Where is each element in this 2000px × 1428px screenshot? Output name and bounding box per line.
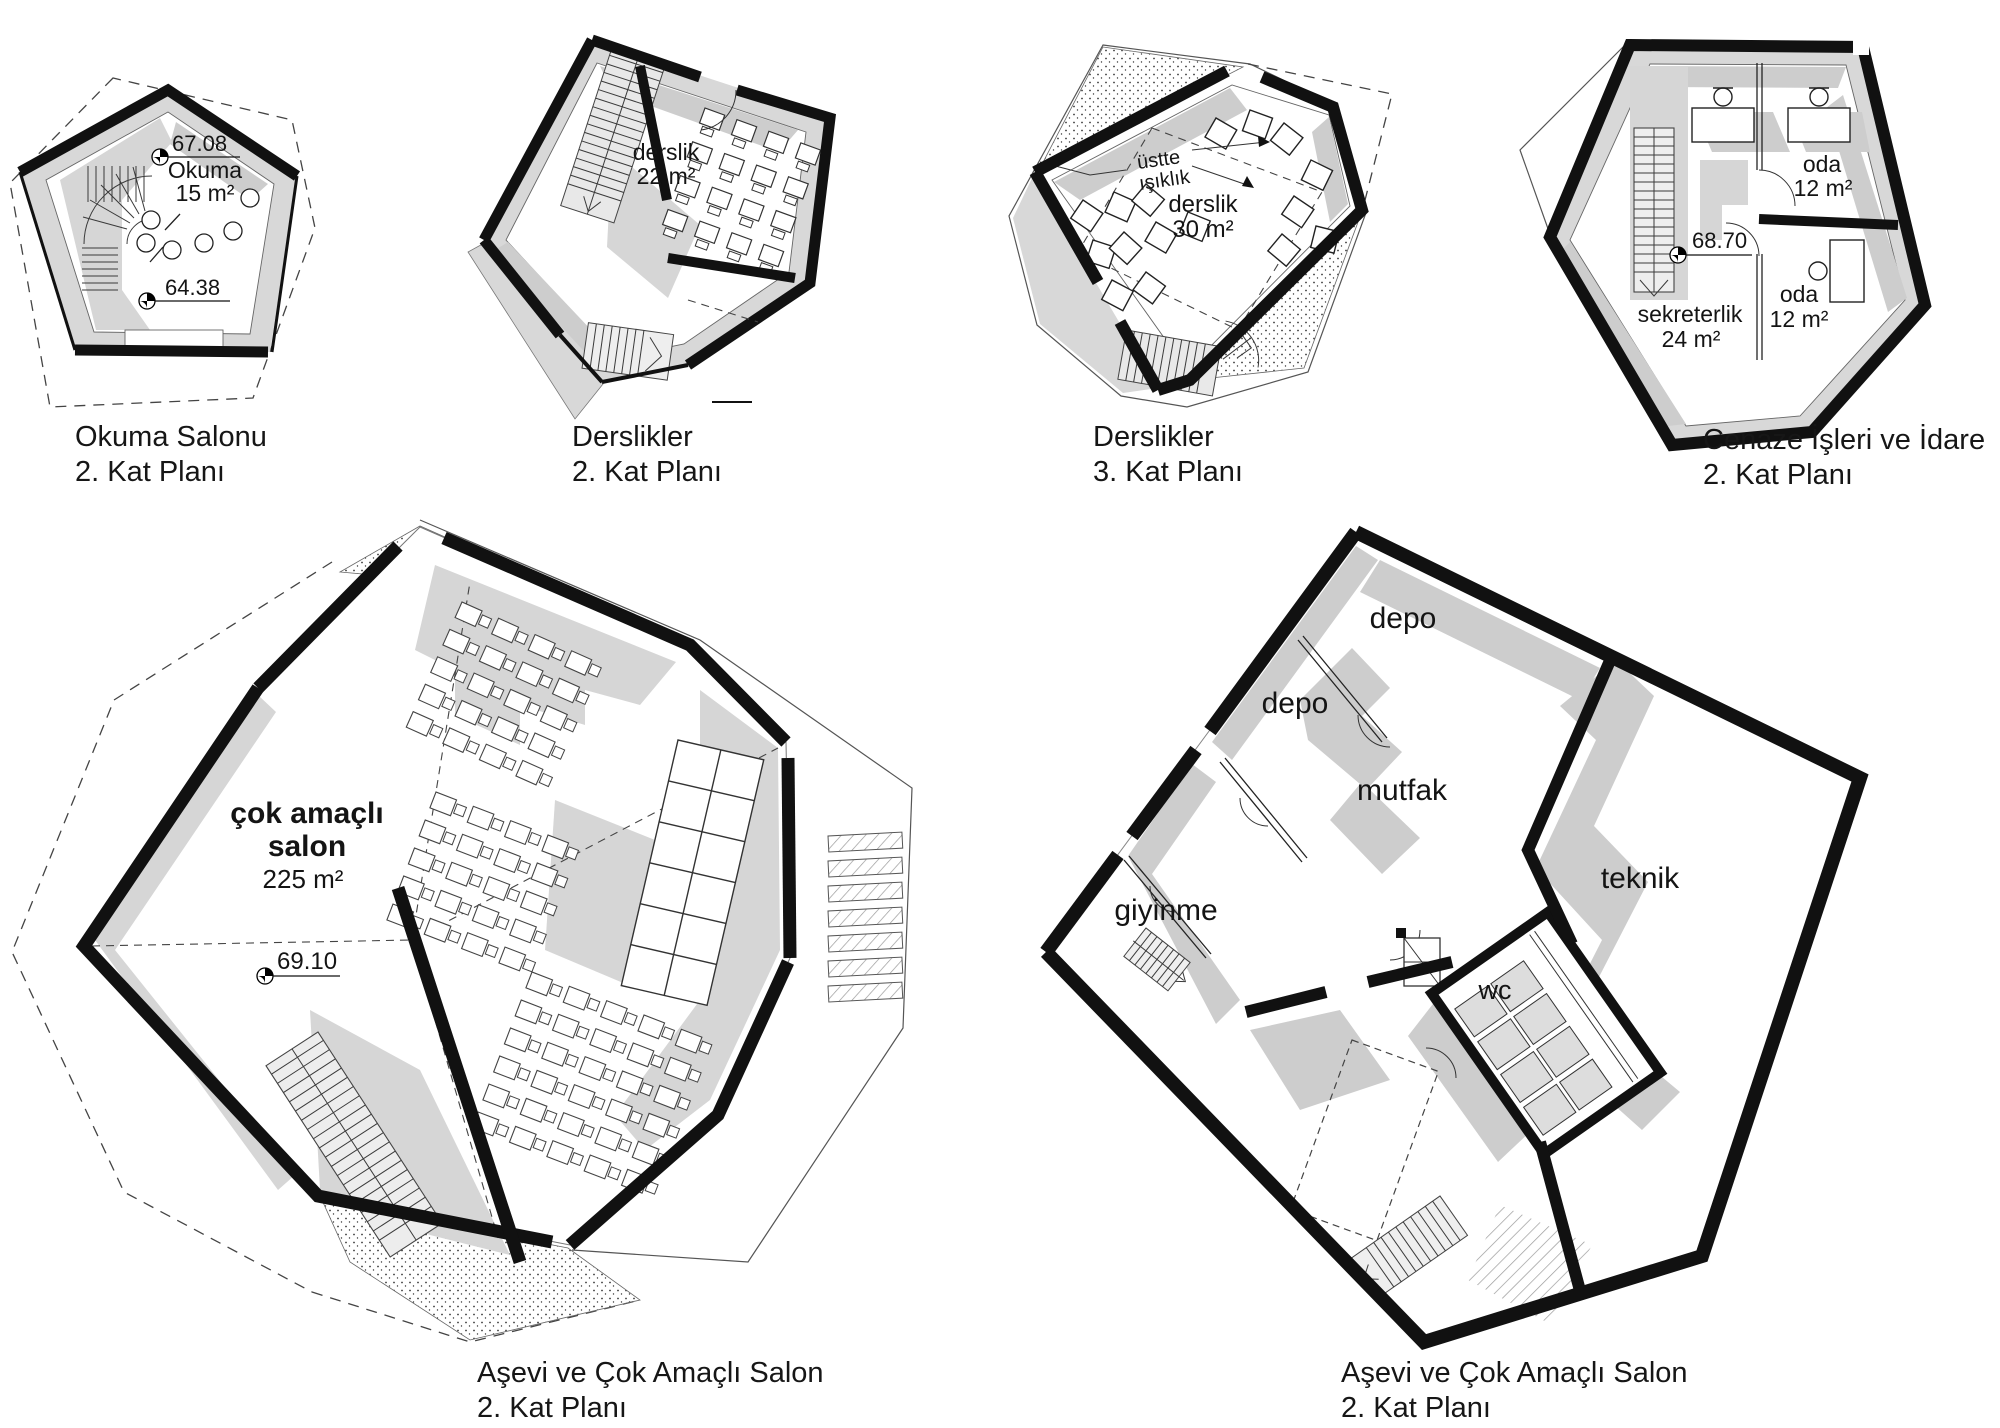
room-name-label: derslik <box>1168 191 1238 218</box>
secretary-label: sekreterlik <box>1638 301 1743 327</box>
caption-okuma: Okuma Salonu 2. Kat Planı <box>75 420 267 490</box>
hall-area-label: 225 m² <box>263 864 344 894</box>
room-area-label: 22 m² <box>637 163 696 189</box>
floor-plans-sheet: 67.08 Okuma 15 m² 64.38 <box>0 0 2000 1428</box>
plan-servis-drawing: depo depo mutfak teknik giyinme wc <box>1020 505 1960 1365</box>
dressing-label: giyinme <box>1114 894 1217 927</box>
partition-wall-thick <box>1759 219 1898 225</box>
caption-derslikler-2-line2: 2. Kat Planı <box>572 455 722 490</box>
terrace-tables <box>828 832 903 1002</box>
hall-name-line1: çok amaçlı <box>230 797 383 830</box>
kitchen-label: mutfak <box>1357 774 1448 807</box>
caption-okuma-line2: 2. Kat Planı <box>75 455 267 490</box>
level-upper-label: 67.08 <box>172 131 227 156</box>
caption-salon-line1: Aşevi ve Çok Amaçlı Salon <box>477 1356 824 1391</box>
caption-cenaze-line2: 2. Kat Planı <box>1703 458 1985 493</box>
caption-derslikler-3-line1: Derslikler <box>1093 420 1243 455</box>
technical-label: teknik <box>1601 862 1680 895</box>
storage-top-label: depo <box>1370 602 1437 635</box>
room-area-label: 30 m² <box>1172 216 1233 243</box>
hall-name-line2: salon <box>268 830 346 863</box>
caption-servis: Aşevi ve Çok Amaçlı Salon 2. Kat Planı <box>1341 1356 1688 1426</box>
caption-salon-line2: 2. Kat Planı <box>477 1391 824 1426</box>
secretary-area-label: 24 m² <box>1662 326 1721 352</box>
room-area-label: 15 m² <box>176 180 235 206</box>
main-stair <box>1634 128 1674 296</box>
caption-derslikler-3: Derslikler 3. Kat Planı <box>1093 420 1243 490</box>
wc-label: wc <box>1478 975 1512 1005</box>
caption-derslikler-3-line2: 3. Kat Planı <box>1093 455 1243 490</box>
level-lower-label: 64.38 <box>165 275 220 300</box>
storage-mid-label: depo <box>1262 687 1329 720</box>
caption-cenaze: Cenaze İşleri ve İdare 2. Kat Planı <box>1703 423 1985 493</box>
level-label: 69.10 <box>277 948 337 975</box>
caption-derslikler-2: Derslikler 2. Kat Planı <box>572 420 722 490</box>
plan-salon-drawing: 69.10 çok amaçlı salon 225 m² <box>0 495 1000 1355</box>
plan-derslikler-2-drawing: derslik 22 m² <box>455 20 900 450</box>
caption-okuma-line1: Okuma Salonu <box>75 420 267 455</box>
plan-okuma-salonu-drawing: 67.08 Okuma 15 m² 64.38 <box>0 55 340 420</box>
office-top-label: oda <box>1803 151 1842 177</box>
caption-derslikler-2-line1: Derslikler <box>572 420 722 455</box>
plan-derslikler-3-drawing: üstte ışıklık derslik 30 m² <box>975 10 1420 440</box>
caption-servis-line2: 2. Kat Planı <box>1341 1391 1688 1426</box>
caption-servis-line1: Aşevi ve Çok Amaçlı Salon <box>1341 1356 1688 1391</box>
office-top-area-label: 12 m² <box>1794 175 1853 201</box>
office-bottom-label: oda <box>1780 281 1819 307</box>
office-bottom-area-label: 12 m² <box>1770 306 1829 332</box>
room-name-label: derslik <box>633 139 700 165</box>
caption-salon: Aşevi ve Çok Amaçlı Salon 2. Kat Planı <box>477 1356 824 1426</box>
caption-cenaze-line1: Cenaze İşleri ve İdare <box>1703 423 1985 458</box>
level-label: 68.70 <box>1692 228 1747 253</box>
